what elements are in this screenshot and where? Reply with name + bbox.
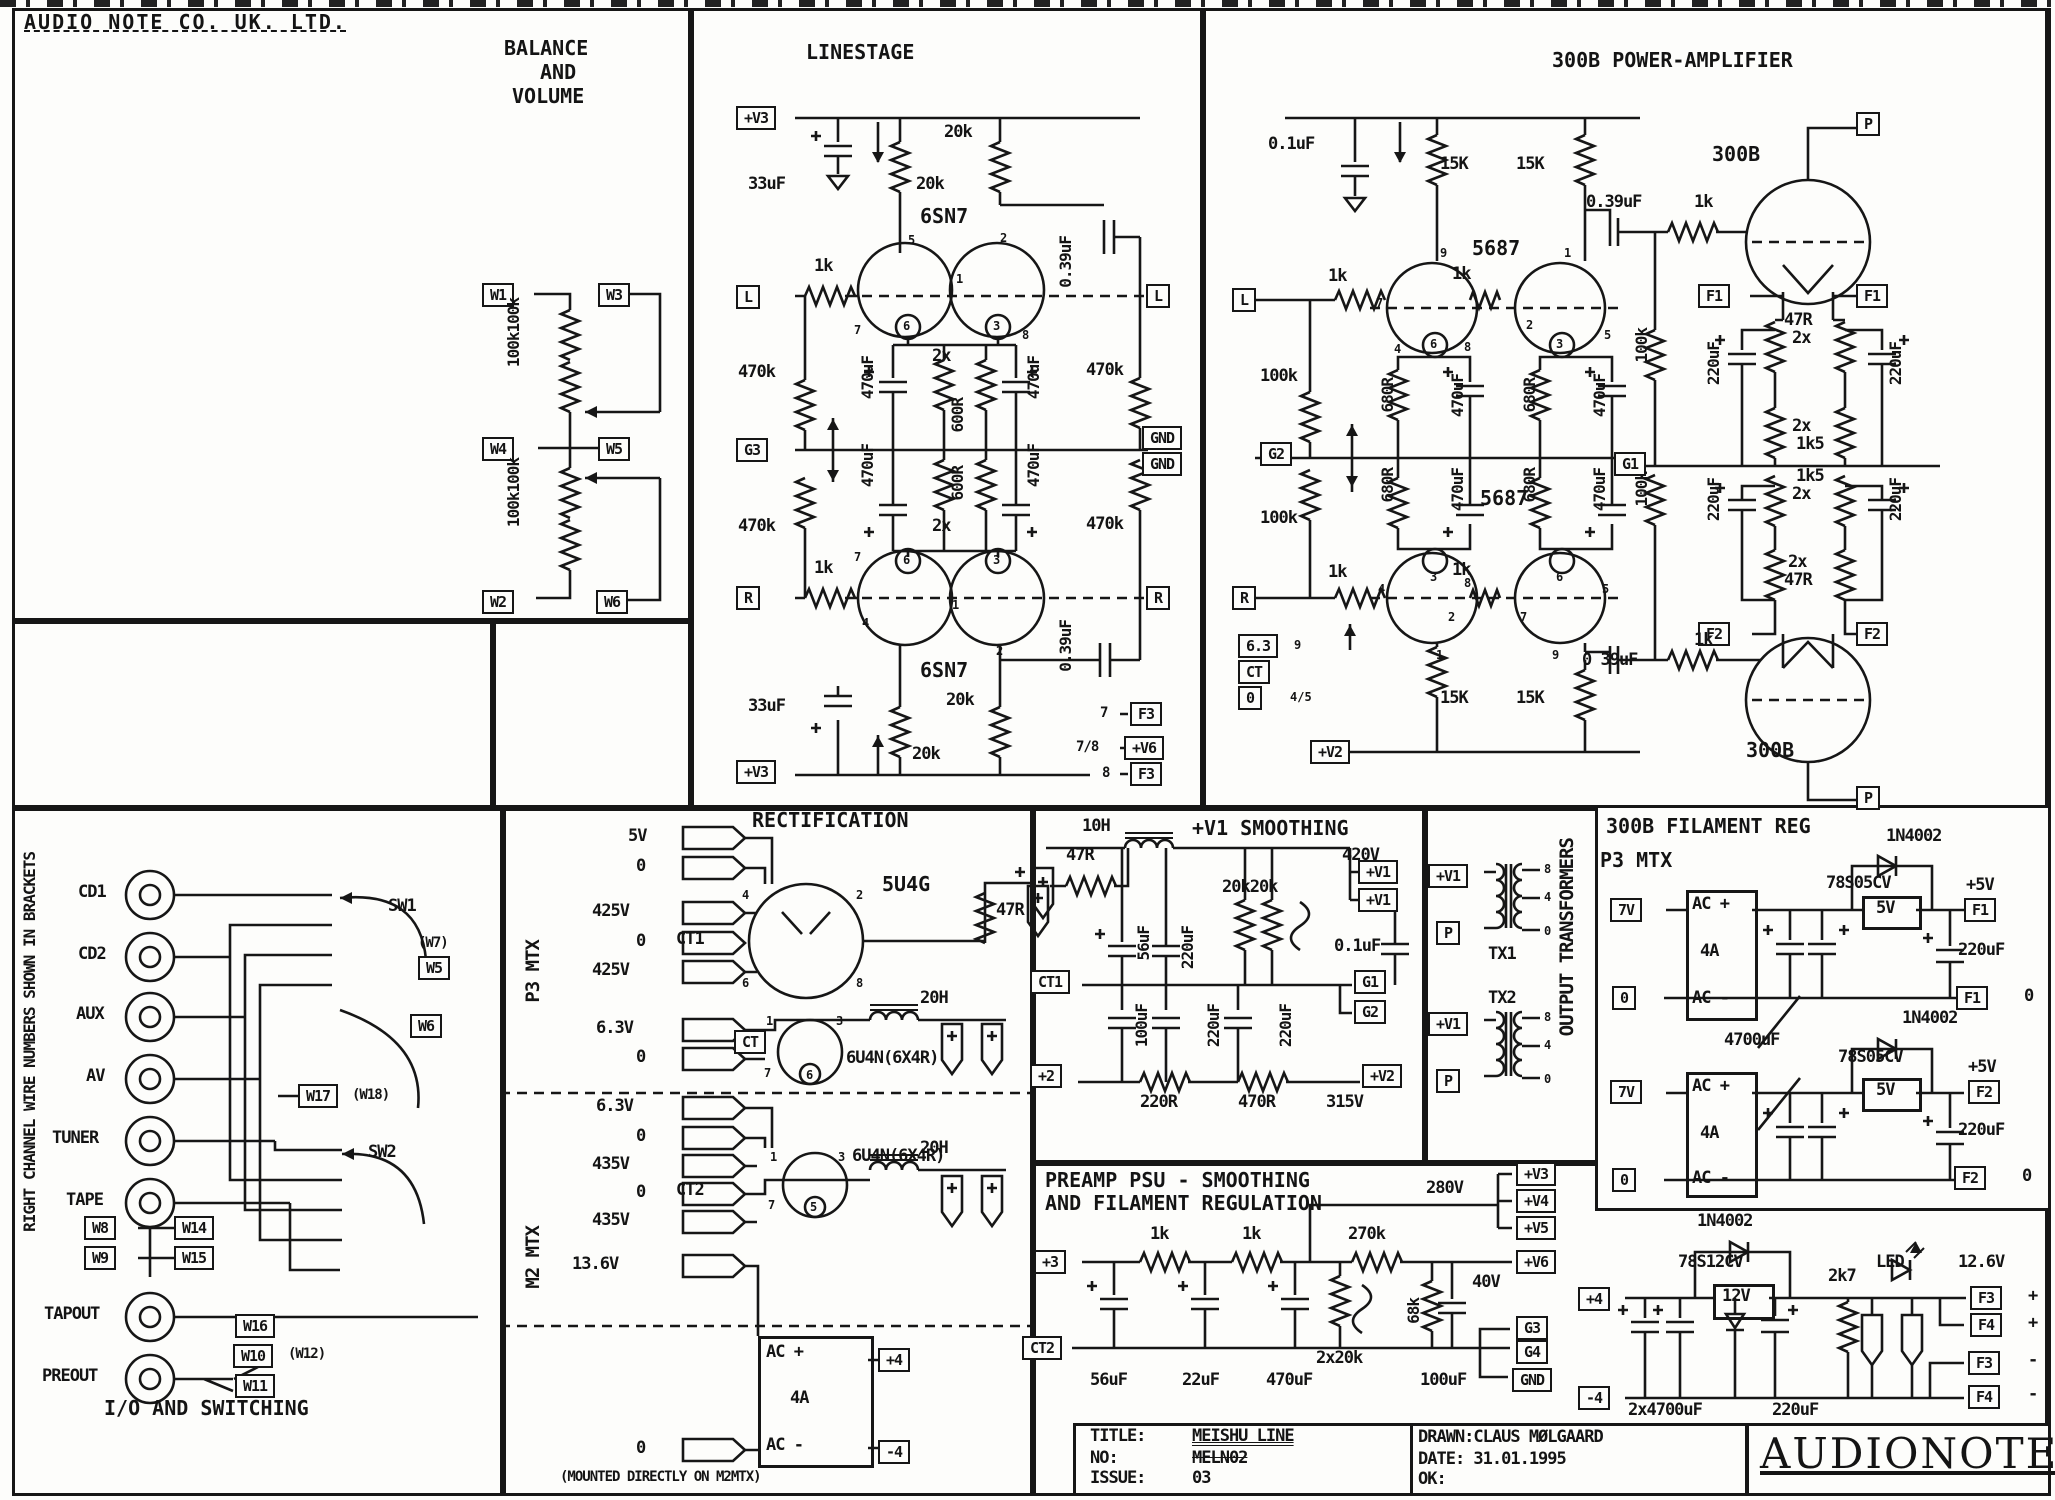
rect-title: RECTIFICATION [752, 810, 909, 831]
label-ac-minus: AC - [766, 1437, 803, 1455]
label-600r-upper: 600R [948, 398, 967, 433]
pin-8: 8 [1464, 340, 1471, 354]
tap-0b: 0 [1544, 1072, 1551, 1086]
pin-t2-1: 1 [770, 1150, 777, 1164]
titleblock-issue-value: 03 [1192, 1470, 1210, 1488]
tag-w2: W2 [482, 590, 514, 614]
tag-amp-input-l: L [1232, 288, 1256, 312]
label-6u4-1: 6U4N(6X4R) [846, 1050, 938, 1068]
label-20h-1: 20H [920, 990, 948, 1008]
label-15k-3: 15K [1440, 690, 1468, 708]
tag-f1-return: F1 [1956, 986, 1988, 1010]
tag-sm-v2: +V2 [1362, 1064, 1402, 1088]
label-1k5-a: 1k5 [1796, 436, 1824, 454]
tag-tx1-v1: +V1 [1428, 864, 1468, 888]
label-300b-upper: 300B [1712, 144, 1760, 165]
pin-4: 4 [1394, 342, 1401, 356]
label-w18: (W18) [352, 1088, 389, 1103]
tag-w14: W14 [174, 1216, 214, 1240]
label-1n4002-2: 1N4002 [1902, 1010, 1957, 1028]
label-470k-upper: 470k [738, 364, 775, 382]
tag-psu-ct2: CT2 [1022, 1336, 1062, 1360]
label-plus5v-1: +5V [1966, 877, 1994, 895]
pin-3b: 3 [993, 553, 1000, 567]
label-1k-coupling-u: 1k [1694, 194, 1712, 212]
pin-2: 2 [1526, 318, 1533, 332]
label-sw1: SW1 [388, 898, 416, 916]
label-100k-grid-lower: 100k [1632, 472, 1651, 507]
tag-f3-a: F3 [1130, 702, 1162, 726]
tag-sm-ct1: CT1 [1030, 970, 1070, 994]
label-78s12cv: 78S12CV [1678, 1254, 1743, 1272]
pin-7: 7 [854, 323, 861, 337]
tag-v1-a: +V1 [1358, 860, 1398, 884]
pin-t1-7: 7 [764, 1066, 771, 1080]
label-1k-b: 1k [1452, 266, 1470, 284]
label-2k7: 2k7 [1828, 1268, 1856, 1286]
label-w-425a: 425V [592, 903, 629, 921]
tag-g1: G1 [1614, 452, 1646, 476]
label-w-0b: 0 [636, 933, 645, 951]
pin-7: 7 [1376, 296, 1383, 310]
label-psu-470uf: 470uF [1266, 1372, 1312, 1390]
pin-5: 5 [1604, 328, 1611, 342]
label-100k-grid-upper: 100k [1632, 328, 1651, 363]
label-1k-d: 1k [1452, 562, 1470, 580]
tag-w17: W17 [298, 1084, 338, 1108]
company-header: AUDIO NOTE CO. UK. LTD. [24, 12, 347, 33]
label-15k-1: 15K [1440, 156, 1468, 174]
label-40v: 40V [1472, 1274, 1500, 1292]
tag-v3-bottom: +V3 [736, 760, 776, 784]
tag-w15: W15 [174, 1246, 214, 1270]
label-220uf-ur: 220uF [1886, 342, 1905, 385]
jack-label-tapout: TAPOUT [44, 1306, 99, 1324]
label-15k-4: 15K [1516, 690, 1544, 708]
balance-title-3: VOLUME [512, 86, 584, 107]
label-680r-ur: 680R [1520, 378, 1539, 413]
label-470uf-ul: 470uF [858, 356, 877, 399]
label-100uf: 100uF [1132, 1004, 1151, 1047]
label-psu-100uf: 100uF [1420, 1372, 1466, 1390]
label-pin8-note: 8 [1102, 766, 1109, 781]
schematic-page: AUDIO NOTE CO. UK. LTD. BALANCE AND VOLU… [0, 0, 2055, 1500]
label-470k-lower: 470k [738, 518, 775, 536]
io-side-note: RIGHT CHANNEL WIRE NUMBERS SHOWN IN BRAC… [20, 852, 39, 1232]
pin-7c: 7 [1520, 610, 1527, 624]
tag-psu-g4: G4 [1516, 1340, 1548, 1364]
pin-3b: 3 [1430, 570, 1437, 584]
label-f4-minus-sign: - [2028, 1386, 2037, 1404]
label-470r: 470R [1238, 1094, 1275, 1112]
label-f4-plus-sign: + [2028, 1315, 2037, 1333]
label-470uf-lr: 470uF [1024, 444, 1043, 487]
label-47r: 47R [996, 902, 1024, 920]
label-1k-c: 1k [1328, 564, 1346, 582]
label-psu-1k-a: 1k [1150, 1226, 1168, 1244]
label-w12: (W12) [288, 1347, 325, 1362]
label-6sn7-top: 6SN7 [920, 206, 968, 227]
label-5v-1: 5V [1876, 900, 1894, 918]
label-w-5v: 5V [628, 828, 646, 846]
tag-v2: +V2 [1310, 740, 1350, 764]
tag-w10: W10 [233, 1344, 273, 1368]
label-220uf-lr: 220uF [1886, 478, 1905, 521]
tap-4b: 4 [1544, 1038, 1551, 1052]
label-sm-01uf: 0.1uF [1334, 938, 1380, 956]
pin-2b: 2 [996, 644, 1003, 658]
tag-ct: CT [734, 1030, 766, 1054]
label-psu-56uf: 56uF [1090, 1372, 1127, 1390]
jack-label-cd2: CD2 [78, 946, 106, 964]
titleblock-title-value: MEISHU LINE [1192, 1428, 1294, 1446]
label-12v: 12V [1722, 1288, 1750, 1306]
label-w7: (W7) [418, 936, 448, 951]
tag-psu-plus4: +4 [1578, 1287, 1610, 1311]
tag-psu-gnd: GND [1512, 1368, 1552, 1392]
label-20k-3: 20k [946, 692, 974, 710]
tag-w11: W11 [235, 1374, 275, 1398]
pin-r6: 6 [742, 976, 749, 990]
label-600r-lower: 600R [948, 466, 967, 501]
pin-r8: 8 [856, 976, 863, 990]
label-psu-1k-b: 1k [1242, 1226, 1260, 1244]
label-f1-return-0: 0 [2024, 988, 2033, 1006]
tag-output-r: R [1146, 586, 1170, 610]
label-100k-upper: 100k [1260, 368, 1297, 386]
tag-f3-b: F3 [1130, 762, 1162, 786]
tag-f4-minus: F4 [1968, 1385, 2000, 1409]
label-tx2: TX2 [1488, 990, 1516, 1008]
pin-t2-7: 7 [768, 1198, 775, 1212]
jack-label-cd1: CD1 [78, 884, 106, 902]
pin-4b: 4 [862, 616, 869, 630]
tag-heater-ct: CT [1238, 660, 1270, 684]
label-f3-plus-sign: + [2028, 1288, 2037, 1306]
label-w2-435a: 435V [592, 1156, 629, 1174]
pin-2: 2 [1000, 231, 1007, 245]
pin-t1-1: 1 [766, 1014, 773, 1028]
tag-f2-out: F2 [1968, 1080, 2000, 1104]
label-220uf-b: 220uF [1204, 1004, 1223, 1047]
label-4a-1: 4A [1700, 943, 1718, 961]
tag-amp-input-r: R [1232, 586, 1256, 610]
tag-w16: W16 [235, 1314, 275, 1338]
label-tx1: TX1 [1488, 946, 1516, 964]
tag-f4-plus: F4 [1970, 1313, 2002, 1337]
label-470uf-ul: 470uF [1448, 374, 1467, 417]
tag-psu-v3: +V3 [1516, 1162, 1556, 1186]
label-20k-4: 20k [912, 746, 940, 764]
pin-1: 1 [1564, 246, 1571, 260]
label-56uf: 56uF [1134, 926, 1153, 961]
label-300b-lower: 300B [1746, 740, 1794, 761]
label-w2-0a: 0 [636, 1128, 645, 1146]
label-039uf-lower: 0.39uF [1056, 620, 1075, 672]
label-acp-2: AC + [1692, 1078, 1729, 1096]
label-f2-return-0: 0 [2022, 1168, 2031, 1186]
tag-plus4: +4 [878, 1348, 910, 1372]
pin-6: 6 [1430, 337, 1437, 351]
pin-2c: 2 [1448, 610, 1455, 624]
label-6sn7-bottom: 6SN7 [920, 660, 968, 681]
label-sw2: SW2 [368, 1144, 396, 1162]
pin-7b: 7 [854, 550, 861, 564]
label-heater-pin45: 4/5 [1290, 690, 1312, 704]
tap-8a: 8 [1544, 862, 1551, 876]
pin-1: 1 [956, 272, 963, 286]
label-680r-ll: 680R [1378, 468, 1397, 503]
linestage-title: LINESTAGE [806, 42, 914, 63]
label-0-acm: 0 [636, 1440, 645, 1458]
pin-t1-6: 6 [806, 1068, 813, 1082]
label-20k20k: 20k20k [1222, 879, 1277, 897]
tag-0-in-2: 0 [1612, 1168, 1636, 1192]
label-315v: 315V [1326, 1094, 1363, 1112]
tag-v3-top: +V3 [736, 106, 776, 130]
tag-w3: W3 [598, 283, 630, 307]
label-w-425b: 425V [592, 962, 629, 980]
label-01uf: 0.1uF [1268, 136, 1314, 154]
tap-8b: 8 [1544, 1010, 1551, 1024]
label-2x-upper: 2x [932, 348, 950, 366]
label-ct1: CT1 [676, 931, 704, 949]
filament-title: 300B FILAMENT REG [1606, 816, 1811, 837]
label-heater-pin9: 9 [1294, 638, 1301, 652]
tag-plus3: +3 [1034, 1250, 1066, 1274]
tag-gnd-1: GND [1142, 426, 1182, 450]
titleblock-drawn: DRAWN:CLAUS MØLGAARD [1418, 1429, 1603, 1447]
tag-input-r: R [736, 586, 760, 610]
label-220uf-ul: 220uF [1704, 342, 1723, 385]
label-470uf-lr: 470uF [1590, 468, 1609, 511]
jack-label-tuner: TUNER [52, 1130, 98, 1148]
label-ct2: CT2 [676, 1182, 704, 1200]
tag-p-lower: P [1856, 786, 1880, 810]
tag-g3: G3 [736, 438, 768, 462]
label-2x20k: 2x20k [1316, 1350, 1362, 1368]
label-220r: 220R [1140, 1094, 1177, 1112]
smoothing-title: +V1 SMOOTHING [1192, 818, 1349, 839]
tag-psu-v5: +V5 [1516, 1216, 1556, 1240]
label-33uf-top: 33uF [748, 176, 785, 194]
pin-8: 8 [1022, 328, 1029, 342]
pin-3: 3 [993, 319, 1000, 333]
label-f3-minus-sign: - [2028, 1352, 2037, 1370]
tag-io-w5: W5 [418, 956, 450, 980]
tag-f1-b: F1 [1856, 284, 1888, 308]
label-15k-2: 15K [1516, 156, 1544, 174]
tag-psu-g3: G3 [1516, 1316, 1548, 1340]
label-78s05cv-2: 78S05CV [1838, 1049, 1903, 1067]
io-caption: I/O AND SWITCHING [104, 1398, 309, 1419]
tag-heater-0: 0 [1238, 686, 1262, 710]
label-039uf-coupling-l: 0 39uF [1582, 652, 1637, 670]
titleblock-issue-label: ISSUE: [1090, 1470, 1145, 1488]
label-78s05cv-1: 78S05CV [1826, 875, 1891, 893]
tag-sm-g2: G2 [1354, 1000, 1386, 1024]
jack-label-aux: AUX [76, 1006, 104, 1024]
tag-f3-plus: F3 [1970, 1286, 2002, 1310]
label-fil-p3mtx: P3 MTX [1600, 850, 1672, 871]
psu-title-1: PREAMP PSU - SMOOTHING [1045, 1170, 1310, 1191]
label-136v: 13.6V [572, 1256, 618, 1274]
tag-f1-a: F1 [1698, 284, 1730, 308]
tag-f3-minus: F3 [1968, 1351, 2000, 1375]
pin-r2: 2 [856, 888, 863, 902]
pin-5b: 5 [1602, 582, 1609, 596]
label-220uf-f1: 220uF [1958, 942, 2004, 960]
label-w2-435b: 435V [592, 1212, 629, 1230]
tag-f2-return: F2 [1954, 1166, 1986, 1190]
pin-1c: 1 [1436, 648, 1443, 662]
pin-3: 3 [1556, 337, 1563, 351]
label-5687-bottom: 5687 [1480, 488, 1528, 509]
tap-4a: 4 [1544, 890, 1551, 904]
label-10h: 10H [1082, 818, 1110, 836]
label-220uf-f2: 220uF [1958, 1122, 2004, 1140]
tag-7v-2: 7V [1610, 1080, 1642, 1104]
label-270k: 270k [1348, 1226, 1385, 1244]
label-2x4700uf: 2x4700uF [1628, 1402, 1702, 1420]
label-126v: 12.6V [1958, 1254, 2004, 1272]
label-220uf-ll: 220uF [1704, 478, 1723, 521]
label-led: LED [1876, 1254, 1904, 1272]
label-w2-0b: 0 [636, 1184, 645, 1202]
label-680r-ul: 680R [1378, 378, 1397, 413]
label-5687-top: 5687 [1472, 238, 1520, 259]
pin-5: 5 [908, 233, 915, 247]
tag-g2: G2 [1260, 442, 1292, 466]
label-4a: 4A [790, 1390, 808, 1408]
tag-p-upper: P [1856, 112, 1880, 136]
pin-6: 6 [903, 319, 910, 333]
label-1n4002-1: 1N4002 [1886, 828, 1941, 846]
label-4700uf: 4700uF [1724, 1032, 1779, 1050]
tag-psu-v4: +V4 [1516, 1189, 1556, 1213]
pin-r4: 4 [742, 888, 749, 902]
tag-psu-v6: +V6 [1516, 1250, 1556, 1274]
label-2x-lower: 2x [932, 518, 950, 536]
tag-v1-b: +V1 [1358, 888, 1398, 912]
label-balance-pots-lower: 100k100k [504, 458, 523, 527]
balance-title-2: AND [540, 62, 576, 83]
label-47r-lower: 47R [1784, 572, 1812, 590]
label-20k-1: 20k [944, 124, 972, 142]
label-2x-a: 2x [1792, 330, 1810, 348]
tag-input-l: L [736, 285, 760, 309]
label-1k-coupling-l: 1k [1694, 632, 1712, 650]
pin-t2-3: 3 [838, 1150, 845, 1164]
label-470uf-ll: 470uF [858, 444, 877, 487]
label-w2-63v: 6.3V [596, 1098, 633, 1116]
label-470uf-ur: 470uF [1024, 356, 1043, 399]
tag-output-l: L [1146, 284, 1170, 308]
tag-0-in-1: 0 [1612, 986, 1636, 1010]
tag-f1-out: F1 [1964, 898, 1996, 922]
pin-9c: 9 [1552, 648, 1559, 662]
label-mount-note: (MOUNTED DIRECTLY ON M2MTX) [560, 1470, 761, 1485]
label-470uf-ur: 470uF [1590, 374, 1609, 417]
tag-w9: W9 [84, 1246, 116, 1270]
label-w-0c: 0 [636, 1049, 645, 1067]
tag-7v-1: 7V [1610, 898, 1642, 922]
tag-sm-g1: G1 [1354, 970, 1386, 994]
label-sm-47r: 47R [1066, 847, 1094, 865]
label-280v: 280V [1426, 1180, 1463, 1198]
tag-plus2: +2 [1030, 1064, 1062, 1088]
tag-io-w6: W6 [410, 1014, 442, 1038]
titleblock-no-value: MELN02 [1192, 1450, 1247, 1468]
amp-title: 300B POWER-AMPLIFIER [1552, 50, 1793, 71]
label-100k-lower: 100k [1260, 510, 1297, 528]
tag-gnd-2: GND [1142, 452, 1182, 476]
tag-tx2-v1: +V1 [1428, 1012, 1468, 1036]
label-plus5v-2: +5V [1968, 1059, 1996, 1077]
tag-w8: W8 [84, 1216, 116, 1240]
label-m2-mtx: M2 MTX [522, 1226, 544, 1289]
label-4a-2: 4A [1700, 1125, 1718, 1143]
tap-0a: 0 [1544, 924, 1551, 938]
tag-minus4: -4 [878, 1440, 910, 1464]
label-acp-1: AC + [1692, 896, 1729, 914]
tag-psu-minus4: -4 [1578, 1386, 1610, 1410]
pin-1b: 1 [952, 598, 959, 612]
pin-t2-5: 5 [810, 1200, 817, 1214]
label-psu-220uf: 220uF [1772, 1402, 1818, 1420]
pin-4b: 4 [1378, 582, 1385, 596]
label-5u4g: 5U4G [882, 874, 930, 895]
tag-f2-b: F2 [1856, 622, 1888, 646]
tag-w6: W6 [596, 590, 628, 614]
label-p3-mtx: P3 MTX [522, 940, 544, 1003]
label-470uf-ll: 470uF [1448, 468, 1467, 511]
titleblock-title-label: TITLE: [1090, 1428, 1145, 1446]
tag-tx2-p: P [1436, 1069, 1460, 1093]
balance-title-1: BALANCE [504, 38, 588, 59]
tag-heater-63: 6.3 [1238, 634, 1278, 658]
titleblock-ok: OK: [1418, 1471, 1446, 1489]
label-68k: 68k [1404, 1298, 1423, 1324]
tag-v6: +V6 [1124, 736, 1164, 760]
titleblock-no-label: NO: [1090, 1450, 1118, 1468]
transformers-title: OUTPUT TRANSFORMERS [1556, 838, 1578, 1036]
label-470k-out-upper: 470k [1086, 362, 1123, 380]
label-psu-22uf: 22uF [1182, 1372, 1219, 1390]
label-1k-l: 1k [814, 258, 832, 276]
label-039uf-coupling-u: 0.39uF [1586, 194, 1641, 212]
label-acm-1: AC - [1692, 990, 1729, 1008]
label-acm-2: AC - [1692, 1170, 1729, 1188]
psu-title-2: AND FILAMENT REGULATION [1045, 1193, 1322, 1214]
tag-tx1-p: P [1436, 921, 1460, 945]
label-w-0a: 0 [636, 858, 645, 876]
jack-label-tape: TAPE [66, 1192, 103, 1210]
label-2x-c: 2x [1792, 486, 1810, 504]
label-33uf-bottom: 33uF [748, 698, 785, 716]
pin-9: 9 [1440, 246, 1447, 260]
label-20k-2: 20k [916, 176, 944, 194]
label-1k-a: 1k [1328, 268, 1346, 286]
label-pin7-note: 7 [1100, 706, 1107, 721]
pin-6b: 6 [1556, 570, 1563, 584]
label-220uf-c: 220uF [1276, 1004, 1295, 1047]
label-balance-pots-upper: 100k100k [504, 298, 523, 367]
label-w-63v: 6.3V [596, 1020, 633, 1038]
audio-note-logo: AUDIONOTE [1760, 1432, 2055, 1476]
jack-label-av: AV [86, 1068, 104, 1086]
label-ac-plus: AC + [766, 1344, 803, 1362]
